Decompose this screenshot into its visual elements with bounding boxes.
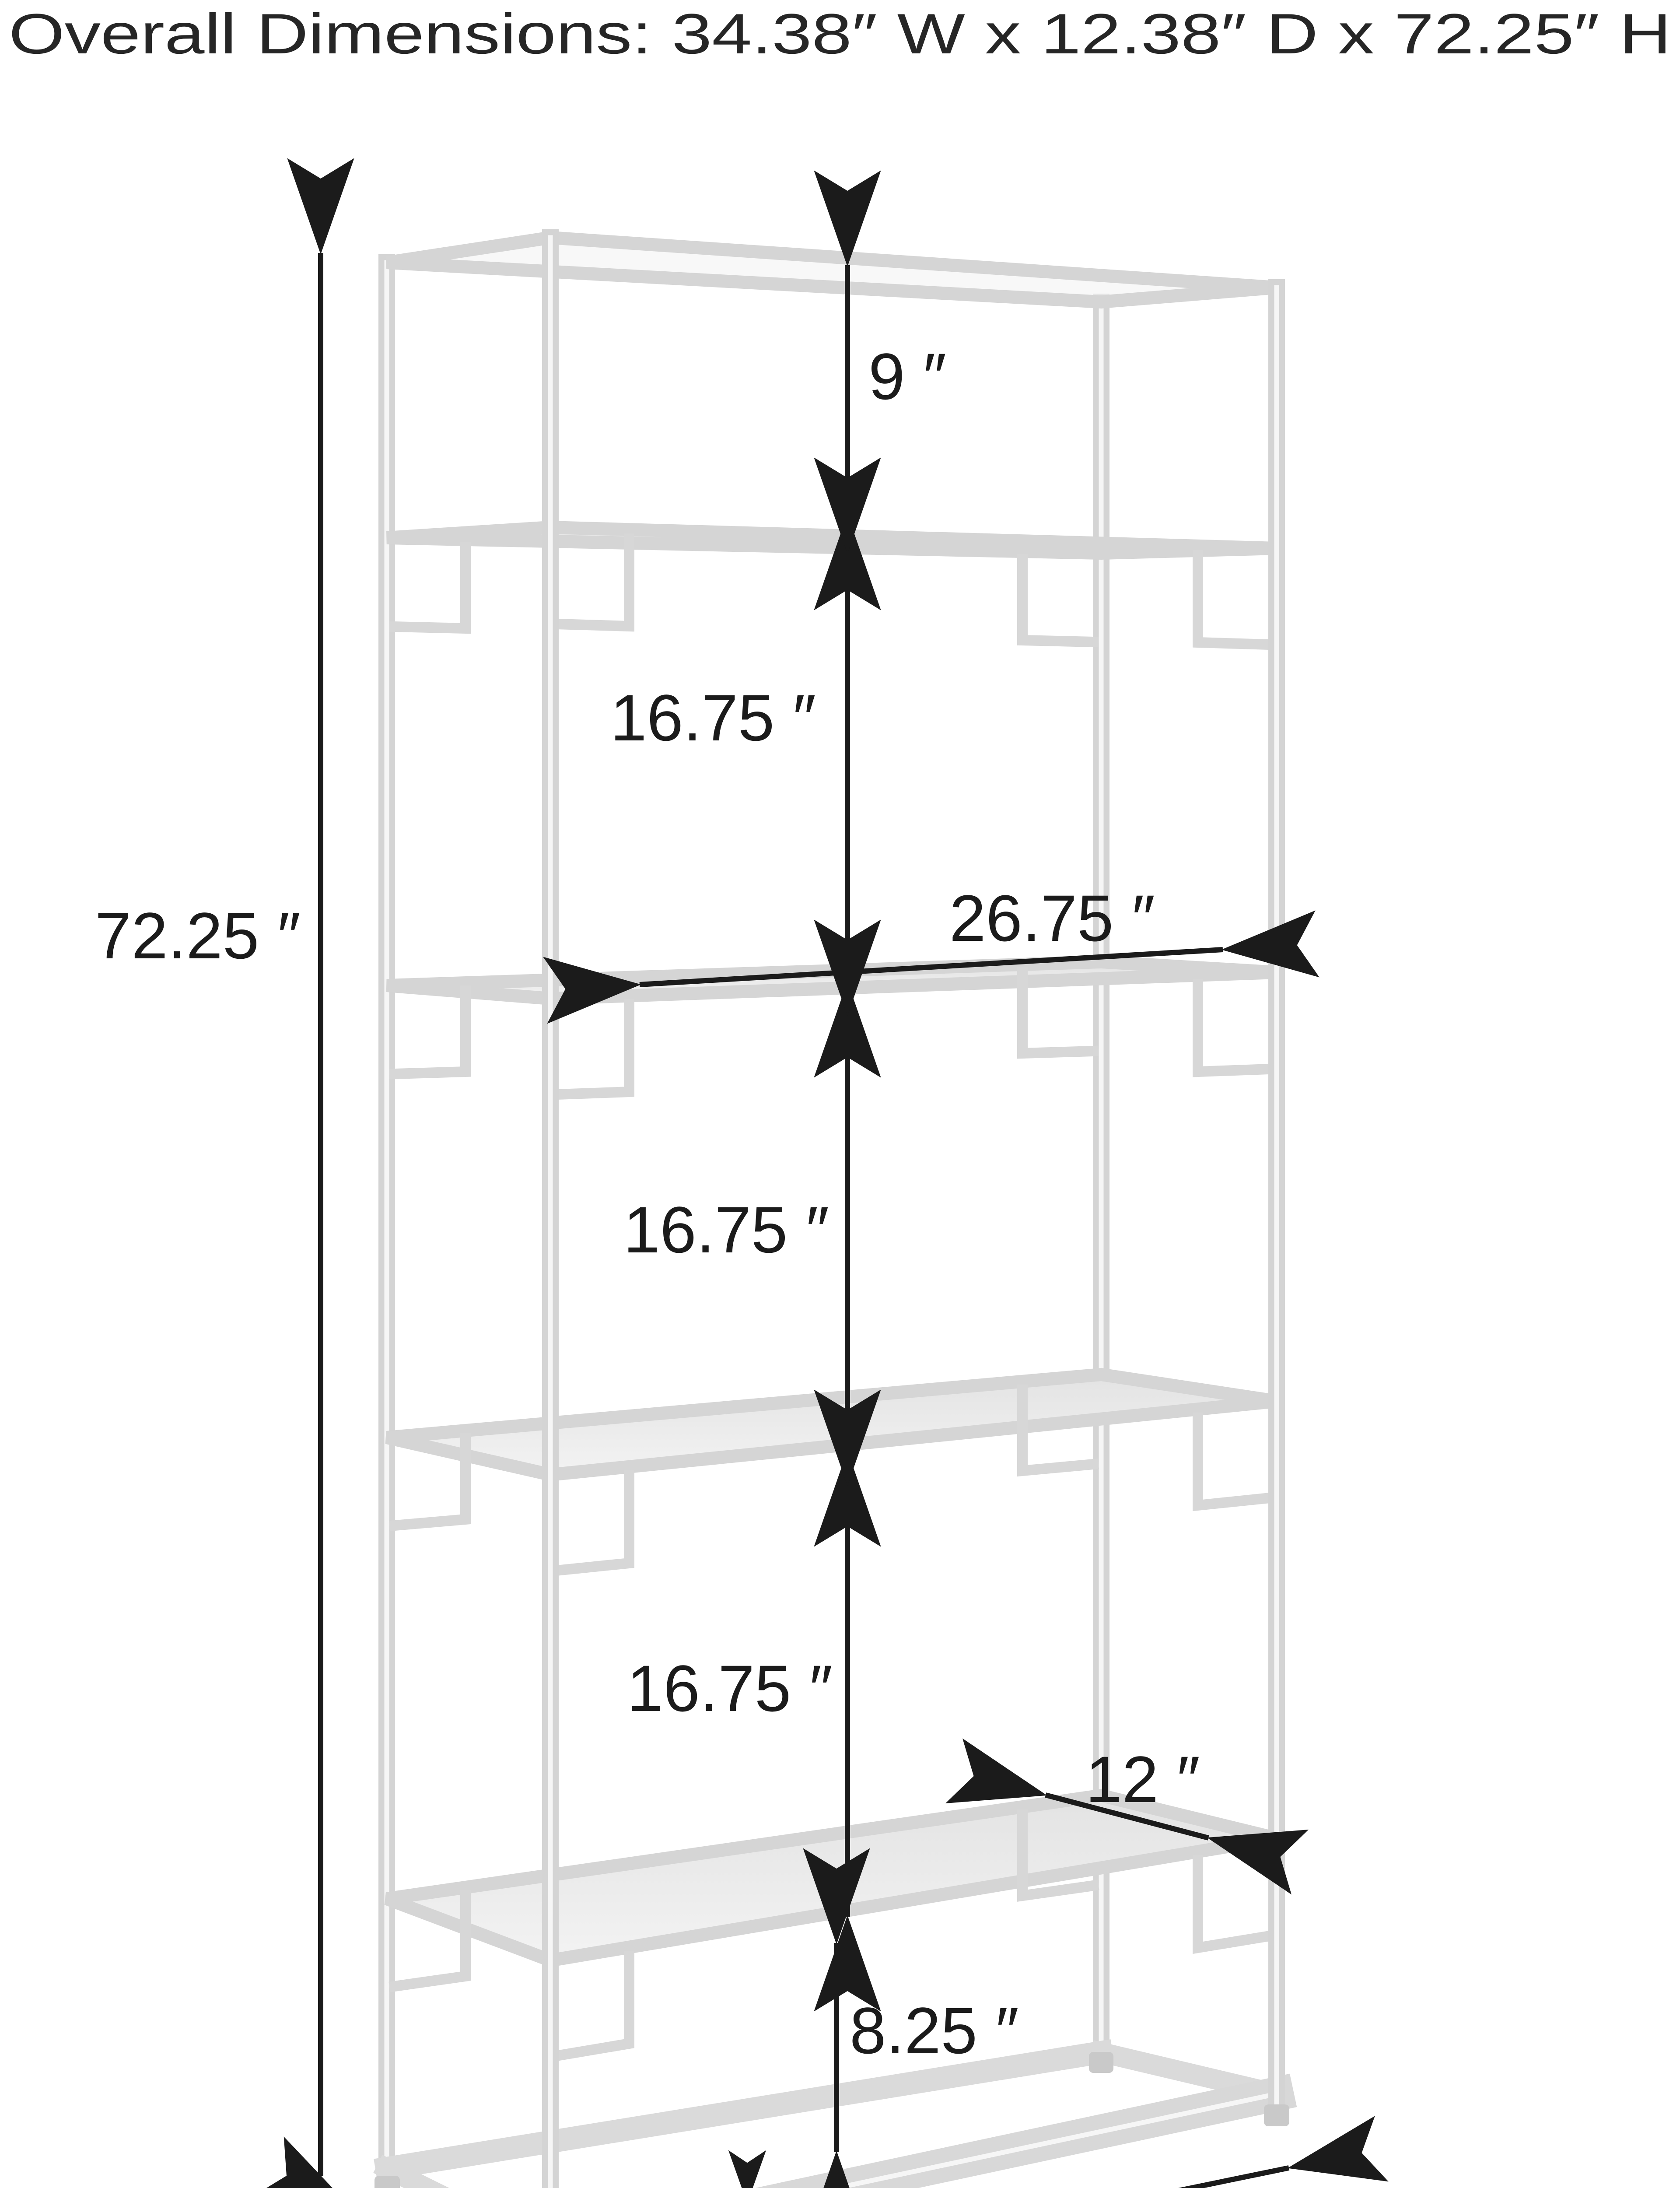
greek-key-bracket	[1022, 559, 1093, 642]
dim-label-shelf-width: 26.75 ″	[949, 881, 1155, 955]
shelf-2	[387, 962, 1277, 1094]
back-right-foot	[1089, 2052, 1113, 2073]
front-right-foot	[1264, 2104, 1289, 2126]
dim-label-bottom-gap: 8.25 ″	[850, 1994, 1019, 2067]
greek-key-bracket	[395, 991, 465, 1074]
dim-label-top-gap: 9 ″	[868, 340, 946, 413]
shelf-3	[387, 1375, 1277, 1571]
dim-shelf-gap-1: 16.75 ″	[610, 552, 847, 983]
bottom-frame	[387, 2052, 1277, 2188]
greek-key-bracket	[1198, 1860, 1270, 1948]
greek-key-bracket	[395, 547, 465, 628]
greek-key-bracket	[556, 539, 629, 626]
shelf-1-rails	[387, 527, 1277, 553]
dimension-diagram: 72.25 ″ 9 ″ 16.75 ″ 26.75 ″ 16.75 ″ 16.7…	[0, 0, 1680, 2188]
dim-label-height-overall: 72.25 ″	[95, 899, 301, 972]
shelf-1	[387, 527, 1277, 645]
greek-key-bracket	[556, 1004, 629, 1094]
back-left-foot	[374, 2176, 400, 2188]
dim-label-shelf-gap-1: 16.75 ″	[610, 681, 816, 754]
dim-top-gap: 9 ″	[847, 265, 946, 515]
greek-key-bracket	[1198, 555, 1270, 645]
page-title: Overall Dimensions: 34.38″ W x 12.38″ D …	[9, 2, 1671, 66]
greek-key-bracket	[556, 1476, 629, 1571]
bottom-left-rail	[387, 2168, 550, 2188]
dim-label-shelf-depth: 12 ″	[1085, 1743, 1200, 1816]
dim-height-overall: 72.25 ″	[95, 253, 321, 2176]
dim-shelf-gap-2: 16.75 ″	[623, 1014, 847, 1452]
etagere-wireframe	[374, 238, 1289, 2188]
greek-key-bracket	[1198, 1418, 1270, 1505]
greek-key-bracket	[556, 1956, 629, 2056]
dim-bottom-gap: 8.25 ″	[836, 1943, 1019, 2152]
dim-label-shelf-gap-3: 16.75 ″	[627, 1652, 833, 1725]
shelf-4	[387, 1795, 1277, 2056]
dim-label-shelf-gap-2: 16.75 ″	[623, 1193, 829, 1266]
greek-key-bracket	[1198, 984, 1270, 1072]
